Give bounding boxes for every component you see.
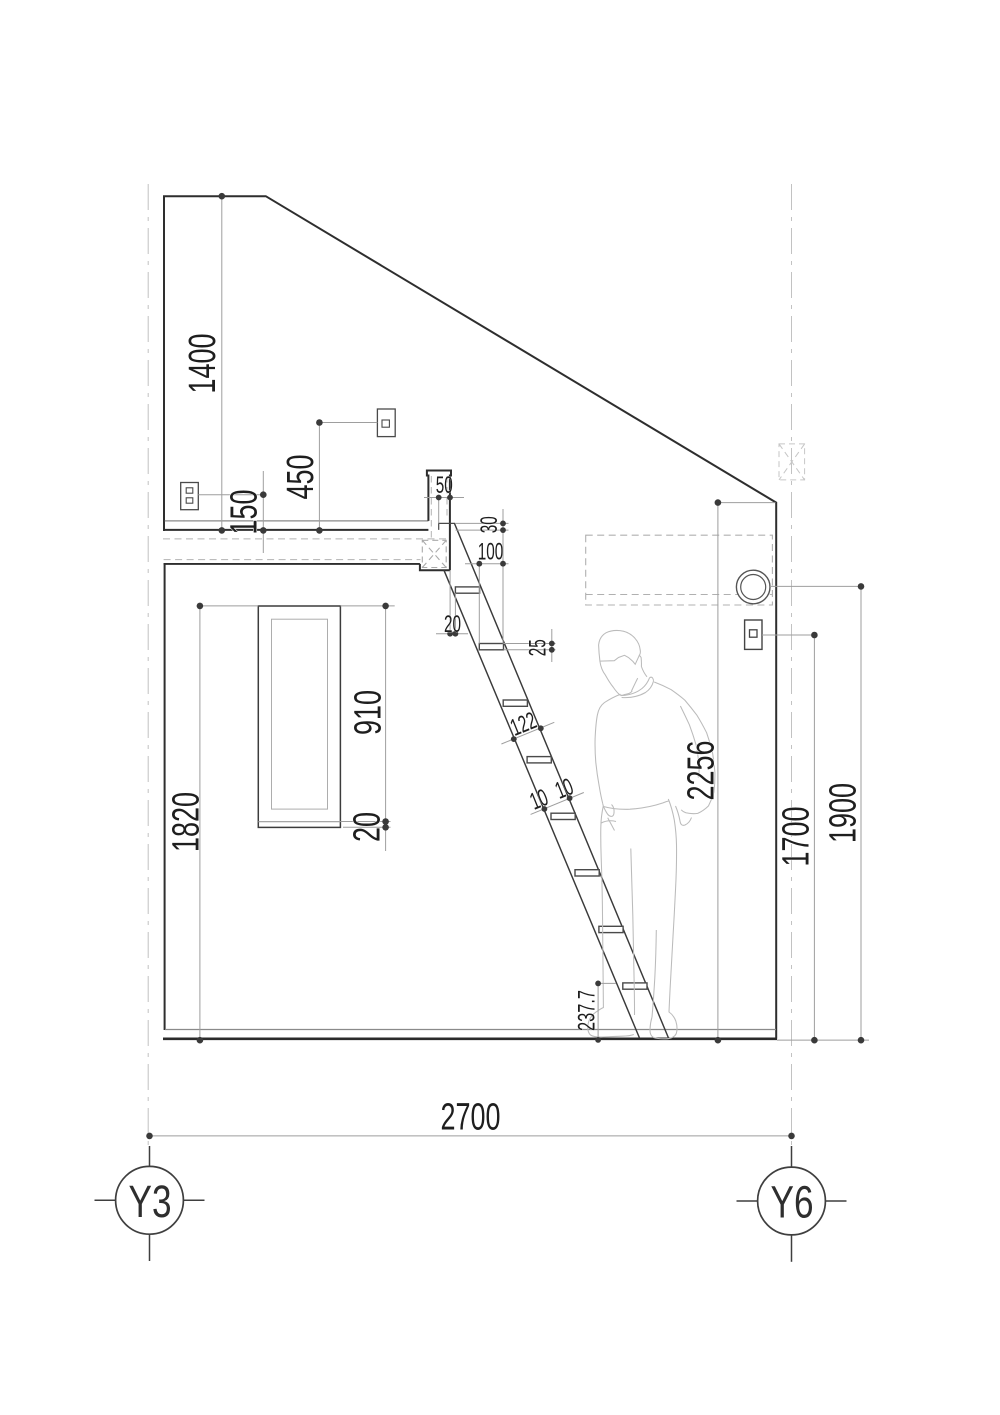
svg-text:237.7: 237.7 bbox=[574, 990, 601, 1031]
svg-text:Y3: Y3 bbox=[129, 1176, 172, 1227]
svg-text:Y6: Y6 bbox=[771, 1177, 814, 1228]
svg-text:2256: 2256 bbox=[681, 741, 723, 801]
svg-text:20: 20 bbox=[347, 812, 389, 842]
svg-text:1820: 1820 bbox=[166, 792, 208, 852]
svg-text:25: 25 bbox=[525, 639, 552, 656]
svg-text:150: 150 bbox=[224, 490, 266, 535]
svg-text:50: 50 bbox=[436, 472, 453, 499]
svg-text:1400: 1400 bbox=[182, 334, 224, 394]
svg-text:100: 100 bbox=[478, 539, 504, 566]
svg-text:2700: 2700 bbox=[441, 1097, 501, 1139]
svg-text:20: 20 bbox=[444, 611, 461, 638]
svg-text:450: 450 bbox=[280, 455, 322, 500]
svg-text:1900: 1900 bbox=[823, 783, 865, 843]
svg-text:1700: 1700 bbox=[776, 807, 818, 867]
svg-text:30: 30 bbox=[476, 516, 503, 533]
svg-text:910: 910 bbox=[348, 690, 390, 735]
